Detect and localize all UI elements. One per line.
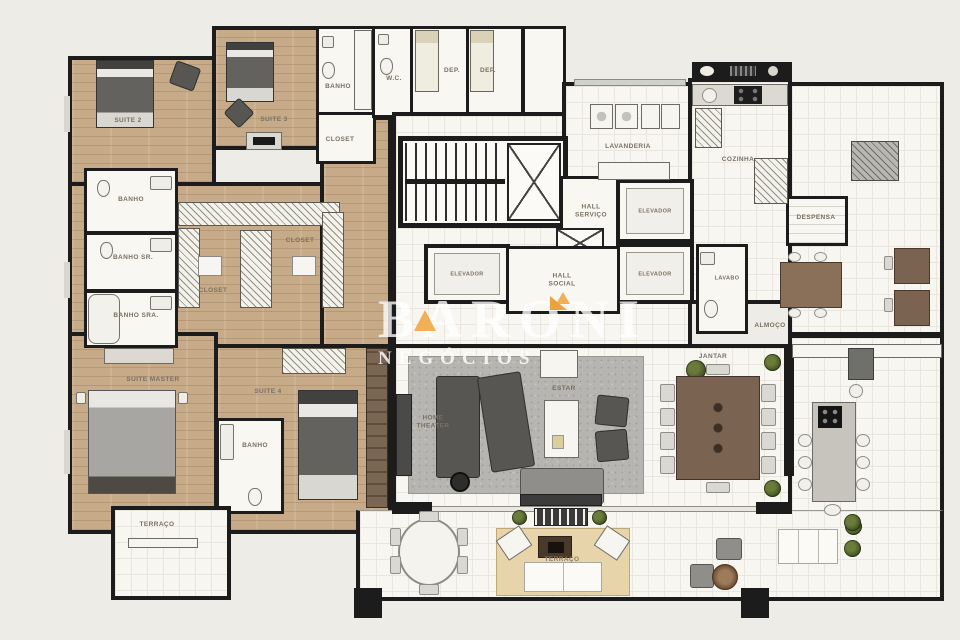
breakfast-table (780, 262, 842, 308)
gourmet-stool-r1 (856, 434, 870, 447)
tv-console (396, 394, 412, 476)
closet-cabinet-suite-4 (366, 348, 388, 508)
label-suite-3: SUITE 3 (260, 116, 287, 124)
armchair-living-1 (595, 394, 630, 427)
label-despensa: DESPENSA (797, 214, 836, 222)
living-wall-stub-right (756, 502, 792, 514)
laundry-tank-2 (661, 104, 680, 129)
fire-table (538, 536, 572, 558)
window-left-3 (64, 430, 70, 474)
plant-fireplace-2 (592, 510, 607, 525)
label-hall-servico: HALL SERVIÇO (571, 204, 611, 221)
label-elevador-2: ELEVADOR (638, 208, 671, 215)
dining-chair-top (706, 364, 730, 375)
kitchen-top-wall (692, 62, 792, 80)
bed-suite-master (88, 390, 176, 494)
plant-terrace-2 (844, 540, 861, 557)
toilet-banho (97, 180, 110, 197)
terrace-chair-w1 (390, 528, 401, 546)
nightstand-right (178, 392, 188, 404)
dining-chair-l2 (660, 408, 675, 426)
plant-dining-2 (764, 480, 781, 497)
sink-banho-sra (150, 296, 172, 310)
breakfast-stool-1 (788, 252, 801, 262)
bed-dep-2 (470, 30, 494, 92)
fire-table-burner (548, 542, 564, 553)
stove (734, 86, 762, 104)
ottoman-1 (716, 538, 742, 560)
fridge (695, 108, 722, 148)
label-hall-social: HALL SOCIAL (542, 273, 582, 290)
breakfast-stool-3 (788, 308, 801, 318)
terraco-master-step (128, 538, 198, 548)
armchair-living-2 (595, 429, 630, 463)
terrace-chair-e2 (457, 556, 468, 574)
terrace-column-left (354, 588, 382, 618)
label-terraco: TERRAÇO (545, 556, 580, 564)
dining-chair-l4 (660, 456, 675, 474)
gourmet-stool-l3 (798, 478, 812, 491)
terrace-chair-e1 (457, 528, 468, 546)
closet-shelf-left (178, 228, 200, 308)
counter-grate (730, 66, 756, 76)
side-table-round (450, 472, 470, 492)
breakfast-stool-4 (814, 308, 827, 318)
gourmet-faucet (849, 384, 863, 398)
dining-chair-l1 (660, 384, 675, 402)
counter-bowl (768, 66, 778, 76)
counter-dish (700, 66, 714, 76)
kitchen-sink (702, 88, 717, 103)
label-suite-2: SUITE 2 (114, 117, 141, 125)
dining-table (676, 376, 760, 480)
label-closet-1: CLOSET (199, 287, 228, 295)
desk-suite-3 (246, 132, 282, 150)
dining-chair-l3 (660, 432, 675, 450)
washer-2 (615, 104, 638, 129)
terrace-planter (712, 564, 738, 590)
washer-1 (590, 104, 613, 129)
label-estar: ESTAR (552, 385, 576, 393)
label-elevador-3: ELEVADOR (638, 271, 671, 278)
jantar-gourmet-wall (784, 346, 794, 476)
gourmet-cooktop (818, 406, 842, 428)
label-closet-2: CLOSET (286, 237, 315, 245)
shower-banho-suite-3 (354, 30, 372, 110)
label-dep-2: DEP. (480, 67, 496, 75)
nightstand-left (76, 392, 86, 404)
dining-chair-r3 (761, 432, 776, 450)
gourmet-stool-r3 (856, 478, 870, 491)
ironing-counter (598, 162, 670, 180)
ottoman-2 (690, 564, 714, 588)
dining-chair-r1 (761, 384, 776, 402)
label-banho-suite-4: BANHO (242, 442, 268, 450)
gourmet-stool-l1 (798, 434, 812, 447)
stair-landing (507, 143, 561, 221)
label-jantar: JANTAR (699, 353, 727, 361)
closet-shelf-right (322, 212, 344, 308)
label-closet-suite-3: CLOSET (326, 136, 355, 144)
closet-shelf-top (178, 202, 340, 226)
breakfast-stool-2 (814, 252, 827, 262)
closet-shelf-mid (240, 230, 272, 308)
closet-pouf-2 (292, 256, 316, 276)
watermark-accent-triangle-small (556, 292, 570, 304)
dining-chair-r2 (761, 408, 776, 426)
sink-wc (378, 34, 389, 45)
terrace-bench (778, 529, 838, 564)
watermark-subtitle: NEGÓCIOS (378, 348, 536, 370)
staircase (398, 136, 568, 228)
tv-cabinet-terrace-wall (520, 494, 602, 506)
gourmet-sink-cabinet (848, 348, 874, 380)
watermark-accent-triangle-large (414, 310, 436, 331)
sink-banho-sr (150, 238, 172, 252)
label-banho-suite-3: BANHO (325, 83, 351, 91)
label-terraco-master: TERRAÇO (140, 521, 175, 529)
label-banho: BANHO (118, 196, 144, 204)
stair-divider (405, 179, 505, 184)
gourmet-stool-b (824, 504, 841, 516)
label-banho-sr: BANHO SR. (113, 254, 153, 262)
terrace-column-right (741, 588, 769, 618)
bed-suite-3 (226, 42, 274, 102)
side-table-1-chair (884, 256, 893, 270)
gourmet-stool-r2 (856, 456, 870, 469)
dining-chair-bottom (706, 482, 730, 493)
label-elevador-1: ELEVADOR (450, 271, 483, 278)
sink-banho-suite-3 (322, 36, 334, 48)
coffee-table (544, 400, 579, 458)
label-banho-sra: BANHO SRA. (113, 312, 158, 320)
laundry-tank-1 (641, 104, 660, 129)
ac-condenser (851, 141, 899, 181)
sink-lavabo (700, 252, 715, 265)
toilet-banho-suite-4 (248, 488, 262, 506)
label-wc: W.C. (386, 75, 402, 83)
label-suite-master: SUITE MASTER (126, 376, 179, 384)
label-lavanderia: LAVANDERIA (605, 143, 651, 151)
service-entry (522, 26, 566, 116)
label-cozinha: COZINHA (722, 156, 754, 164)
label-almoco: ALMOÇO (754, 322, 785, 330)
side-table-1 (894, 248, 930, 284)
vanity-banho-suite-4 (220, 424, 234, 460)
terrace-sofa (524, 562, 602, 592)
terrace-round-table (398, 518, 460, 586)
toilet-wc (380, 58, 393, 75)
toilet-banho-sr (100, 242, 113, 259)
wardrobe-suite-4 (282, 348, 346, 374)
floor-plan: SUITE 2 SUITE 3 BANHO CLOSET W.C. DEP. D… (0, 0, 960, 640)
label-dep-1: DEP. (444, 67, 460, 75)
dresser-suite-master (104, 348, 174, 364)
terrace-chair-w2 (390, 556, 401, 574)
fireplace-panel (540, 350, 578, 378)
label-home-theater: HOME THEATER (413, 415, 453, 432)
side-table-2 (894, 290, 930, 326)
bed-suite-4 (298, 390, 358, 500)
label-lavabo: LAVABO (715, 275, 740, 282)
gourmet-stool-l2 (798, 456, 812, 469)
plant-terrace-1 (844, 514, 861, 531)
label-suite-4: SUITE 4 (254, 388, 281, 396)
kitchen-counter-l (754, 158, 788, 204)
sink-banho (150, 176, 172, 190)
terrace-chair-n (419, 511, 439, 522)
bed-dep-1 (415, 30, 439, 92)
dining-chair-r4 (761, 456, 776, 474)
window-left-1 (64, 96, 70, 132)
terrace-fireplace (534, 508, 588, 526)
window-left-2 (64, 262, 70, 298)
coffee-table-tray (552, 435, 564, 449)
toilet-banho-suite-3 (322, 62, 335, 79)
plant-fireplace-1 (512, 510, 527, 525)
tv-monitor (253, 137, 275, 145)
side-table-2-chair (884, 298, 893, 312)
toilet-lavabo (704, 300, 718, 318)
plant-dining-1 (764, 354, 781, 371)
closet-pouf-1 (198, 256, 222, 276)
terrace-chair-s (419, 584, 439, 595)
laundry-window (574, 79, 686, 86)
